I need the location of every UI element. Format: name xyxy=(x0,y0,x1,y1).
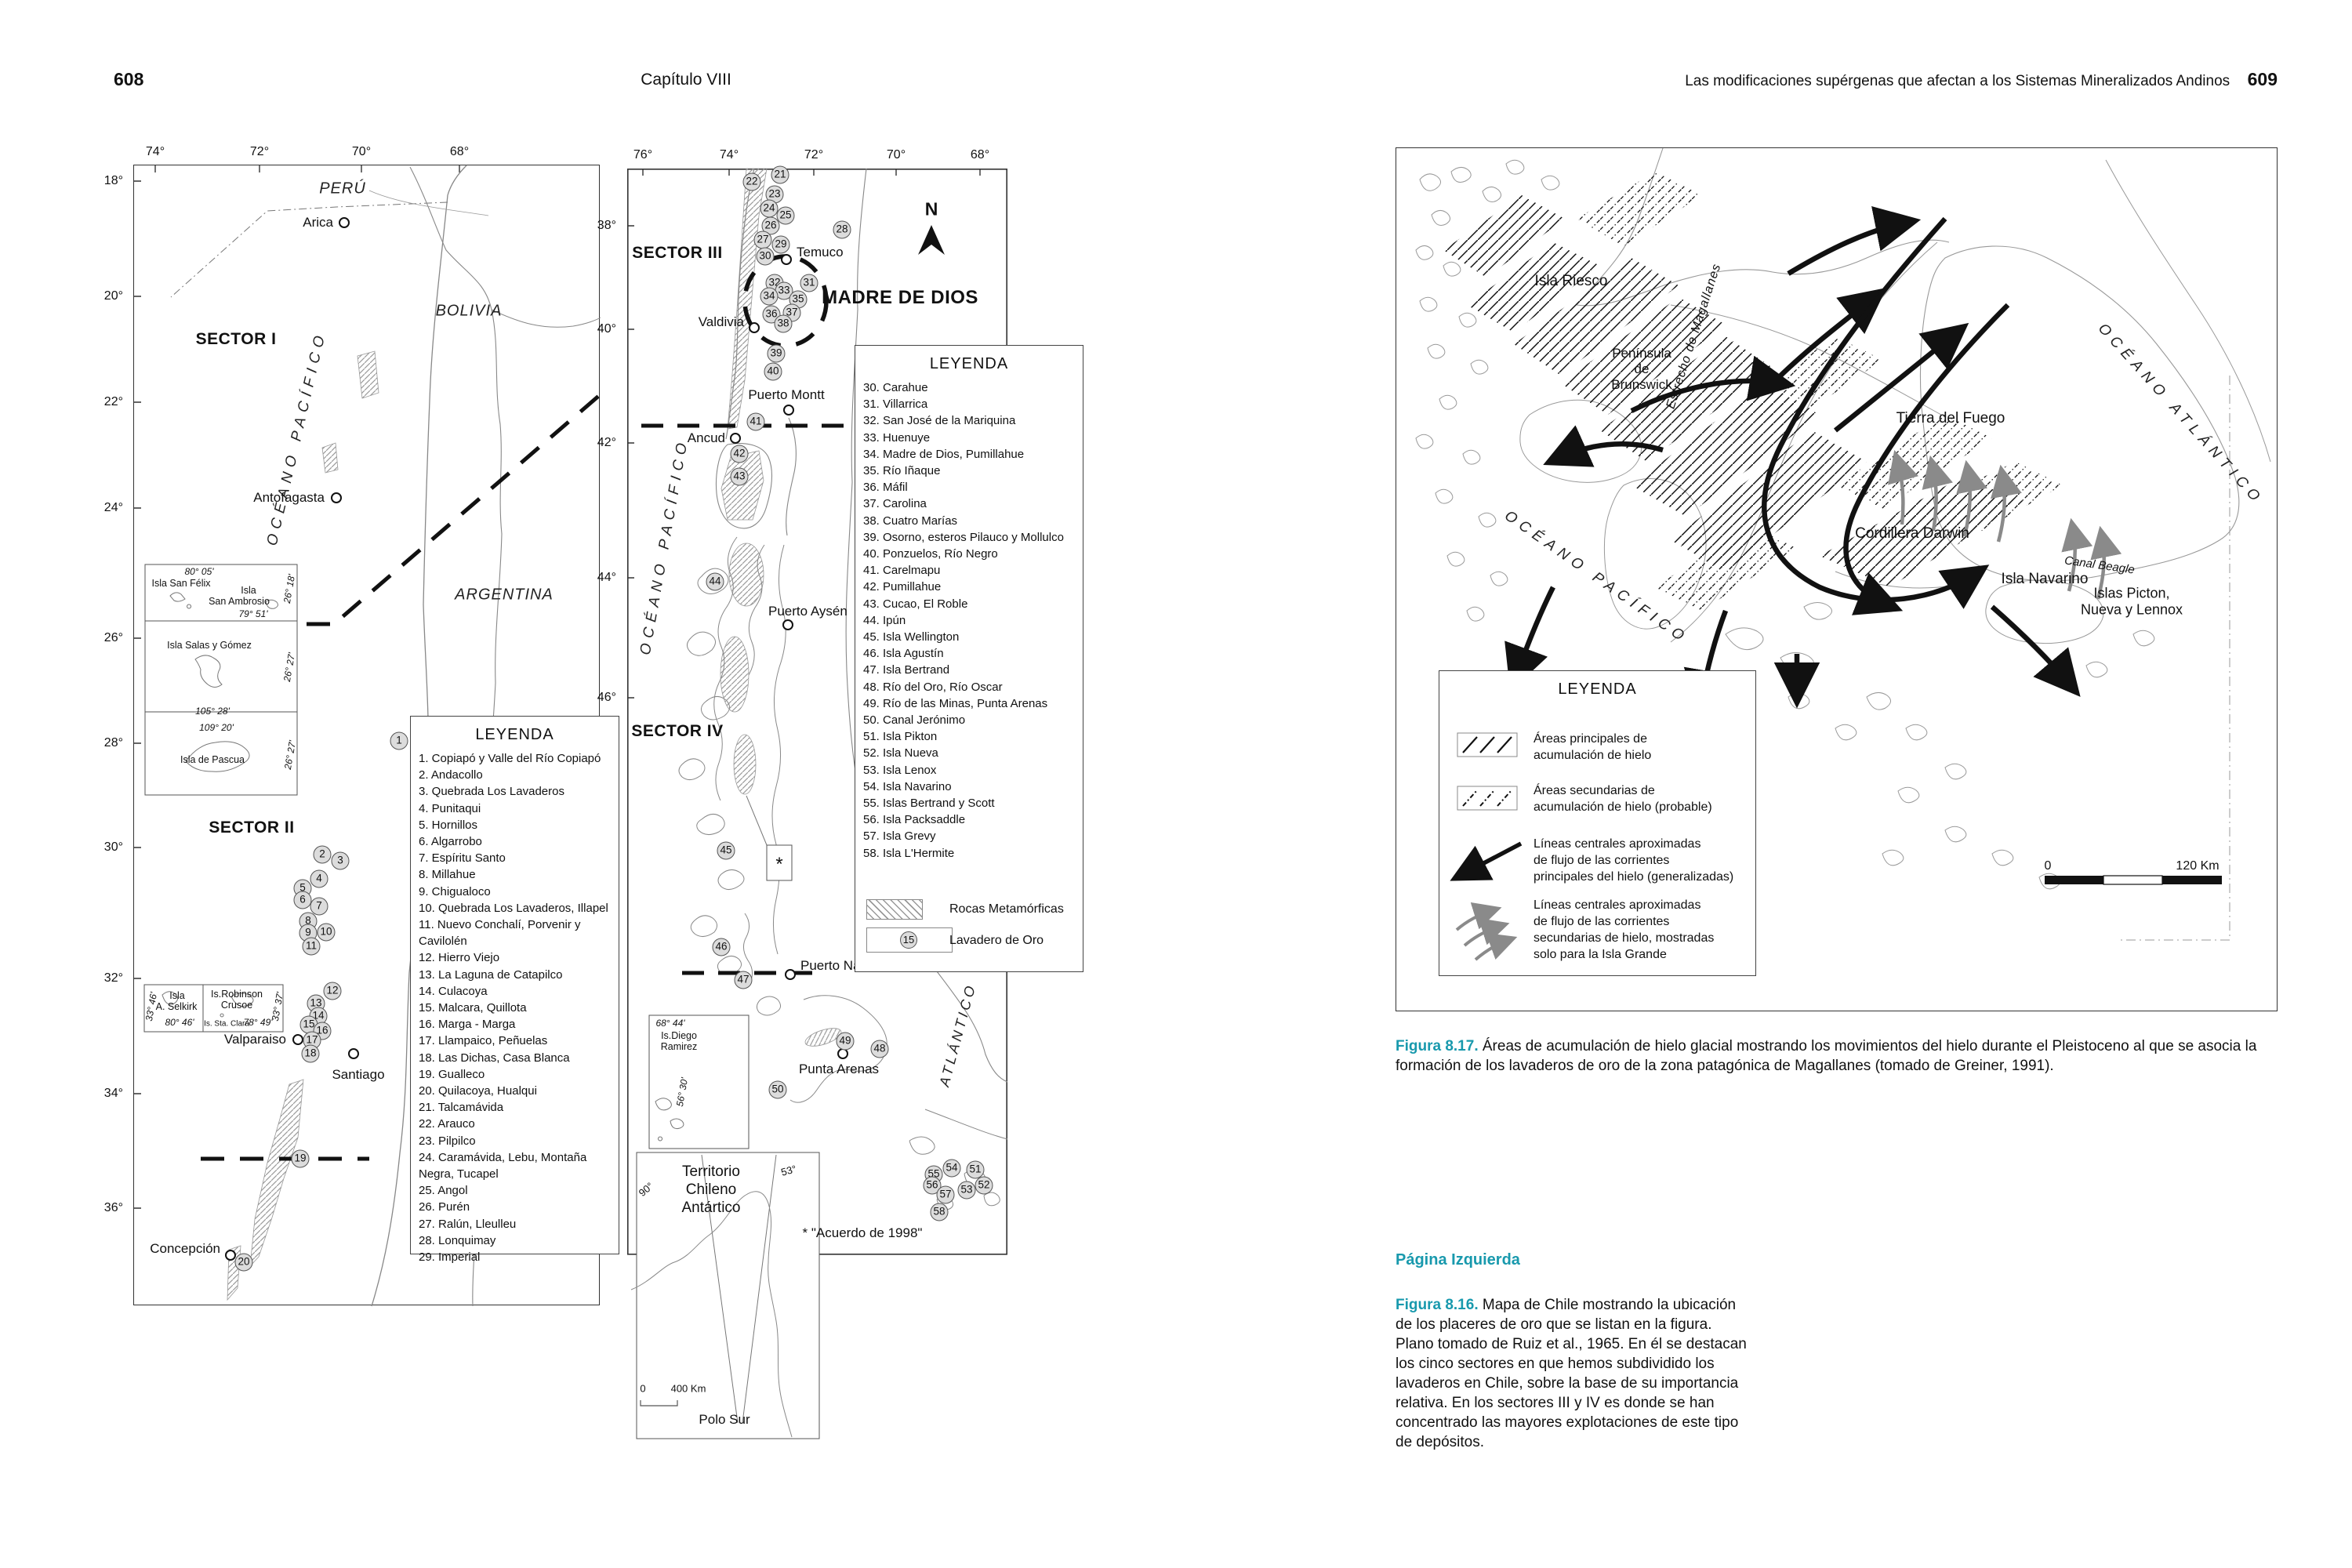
list-item: 33. Huenuye xyxy=(855,430,1083,446)
city-label-Concepción: Concepción xyxy=(150,1241,220,1257)
list-item: 27. Ralún, Lleulleu xyxy=(411,1216,619,1232)
lat-tick-label: 46° xyxy=(597,691,616,705)
lon-tick-label: 68° xyxy=(450,145,469,159)
list-item: 47. Isla Bertrand xyxy=(855,662,1083,678)
map-label: 105° 28' xyxy=(195,706,230,717)
placer-marker-44: 44 xyxy=(706,573,724,591)
lon-tick-label: 72° xyxy=(250,145,269,159)
placer-marker-34: 34 xyxy=(760,288,779,306)
placer-marker-40: 40 xyxy=(764,363,782,381)
placer-marker-38: 38 xyxy=(775,315,793,333)
map-label: Cordillera Darwin xyxy=(1855,525,1969,543)
list-item: 35. Río Iñaque xyxy=(855,463,1083,479)
north-arrow-icon xyxy=(918,225,945,255)
list-item: 38. Cuatro Marías xyxy=(855,513,1083,529)
list-item: Líneas centrales aproximadas xyxy=(1534,836,1733,852)
map-label: 120 Km xyxy=(2176,859,2219,873)
placer-marker-28: 28 xyxy=(833,221,851,239)
legend-fig816-south: LEYENDA 30. Carahue31. Villarrica32. San… xyxy=(855,345,1083,972)
city-dot-Arica xyxy=(339,217,350,228)
gold-placer-sample-marker: 15 xyxy=(900,931,917,949)
list-item: Áreas secundarias de xyxy=(1534,782,1712,799)
running-head-right: Las modificaciones supérgenas que afecta… xyxy=(1685,73,2230,89)
page-number-left: 608 xyxy=(114,69,143,90)
page-number-right: 609 xyxy=(2248,69,2278,89)
list-item: 6. Algarrobo xyxy=(411,833,619,850)
list-item: 42. Pumillahue xyxy=(855,579,1083,595)
list-item: 44. Ipún xyxy=(855,612,1083,629)
map-label: Is. Sta. Clara xyxy=(204,1020,249,1029)
list-item: 11. Nuevo Conchalí, Porvenir y Cavilolén xyxy=(411,916,619,949)
lat-tick-label: 24° xyxy=(104,501,123,515)
map-label: 400 Km xyxy=(671,1383,706,1395)
lat-tick-label: 32° xyxy=(104,971,123,985)
list-item: 1. Copiapó y Valle del Río Copiapó xyxy=(411,750,619,767)
list-item: 10. Quebrada Los Lavaderos, Illapel xyxy=(411,900,619,916)
main-flow-label: Líneas centrales aproximadasde flujo de … xyxy=(1534,836,1733,885)
city-label-Puerto Aysén: Puerto Aysén xyxy=(768,604,848,619)
map-label: Nueva y Lennox xyxy=(2081,602,2183,619)
city-label-Temuco: Temuco xyxy=(797,245,844,260)
gold-placer-swatch: 15 xyxy=(866,927,953,953)
lat-tick-label: 20° xyxy=(104,289,123,303)
list-item: 39. Osorno, esteros Pilauco y Mollulco xyxy=(855,529,1083,546)
placer-marker-25: 25 xyxy=(777,207,795,225)
metamorphic-rock-label: Rocas Metamórficas xyxy=(949,902,1064,916)
lon-tick-label: 76° xyxy=(633,148,652,162)
metamorphic-rock-swatch xyxy=(866,899,923,920)
lon-tick-label: 74° xyxy=(146,145,165,159)
placer-marker-42: 42 xyxy=(731,445,749,463)
placer-marker-58: 58 xyxy=(931,1203,949,1221)
map-label: Isla San Félix xyxy=(151,578,210,589)
placer-marker-11: 11 xyxy=(303,938,321,956)
map-label: Islas Picton, xyxy=(2093,586,2169,602)
map-label: * "Acuerdo de 1998" xyxy=(803,1225,923,1241)
map-label: * xyxy=(775,854,782,876)
lon-tick-label: 70° xyxy=(352,145,371,159)
placer-marker-50: 50 xyxy=(769,1081,787,1099)
list-item: Líneas centrales aproximadas xyxy=(1534,897,1714,913)
secondary-ice-swatch xyxy=(1457,786,1518,811)
lat-tick-label: 18° xyxy=(104,174,123,188)
city-label-Valparaiso: Valparaiso xyxy=(224,1032,286,1047)
list-item: 5. Hornillos xyxy=(411,817,619,833)
list-item: 28. Lonquimay xyxy=(411,1232,619,1249)
city-dot-Concepción xyxy=(225,1250,236,1261)
map-label: 0 xyxy=(2045,859,2052,873)
list-item: 9. Chigualoco xyxy=(411,884,619,900)
map-label: Antártico xyxy=(682,1200,741,1217)
map-label: Ramirez xyxy=(661,1041,698,1052)
legend-items: 1. Copiapó y Valle del Río Copiapó2. And… xyxy=(411,750,619,1265)
lat-tick-label: 30° xyxy=(104,840,123,855)
lat-tick-label: 26° xyxy=(104,631,123,645)
list-item: 43. Cucao, El Roble xyxy=(855,596,1083,612)
legend-items: 30. Carahue31. Villarrica32. San José de… xyxy=(855,379,1083,862)
primary-ice-swatch xyxy=(1457,732,1518,757)
list-item: acumulación de hielo xyxy=(1534,747,1651,764)
map-label: N xyxy=(925,199,938,220)
lat-tick-label: 40° xyxy=(597,322,616,336)
list-item: 32. San José de la Mariquina xyxy=(855,412,1083,429)
map-label: Chileno xyxy=(686,1181,736,1199)
city-label-Punta Arenas: Punta Arenas xyxy=(799,1062,879,1077)
lon-tick-label: 70° xyxy=(887,148,906,162)
list-item: 31. Villarrica xyxy=(855,396,1083,412)
list-item: 7. Espíritu Santo xyxy=(411,850,619,866)
main-flow-arrow-icon xyxy=(1449,837,1527,884)
placer-marker-29: 29 xyxy=(772,236,790,254)
placer-marker-45: 45 xyxy=(717,842,735,860)
map-label: Isla Riesco xyxy=(1535,273,1608,290)
lat-tick-label: 38° xyxy=(597,219,616,233)
lon-tick-label: 68° xyxy=(971,148,989,162)
map-label: SECTOR III xyxy=(632,244,722,263)
list-item: acumulación de hielo (probable) xyxy=(1534,799,1712,815)
placer-marker-19: 19 xyxy=(292,1150,310,1168)
placer-marker-47: 47 xyxy=(735,971,753,989)
legend-fig816-north: LEYENDA 1. Copiapó y Valle del Río Copia… xyxy=(410,716,619,1254)
lat-tick-label: 36° xyxy=(104,1201,123,1215)
list-item: 3. Quebrada Los Lavaderos xyxy=(411,783,619,800)
map-label: A. Selkirk xyxy=(156,1001,198,1012)
placer-marker-46: 46 xyxy=(713,938,731,956)
list-item: 34. Madre de Dios, Pumillahue xyxy=(855,446,1083,463)
placer-marker-20: 20 xyxy=(235,1254,253,1272)
placer-marker-18: 18 xyxy=(302,1045,320,1063)
list-item: principales del hielo (generalizadas) xyxy=(1534,869,1733,885)
list-item: 36. Máfil xyxy=(855,479,1083,495)
secondary-flow-arrows-icon xyxy=(1450,900,1525,963)
list-item: 8. Millahue xyxy=(411,866,619,883)
city-label-Ancud: Ancud xyxy=(688,430,725,446)
city-dot-Antofagasta xyxy=(331,492,342,503)
map-label: 80° 05' xyxy=(184,566,213,577)
list-item: 41. Carelmapu xyxy=(855,562,1083,579)
map-label: Crusoe xyxy=(221,1000,252,1011)
list-item: 45. Isla Wellington xyxy=(855,629,1083,645)
list-item: 16. Marga - Marga xyxy=(411,1016,619,1033)
list-item: 49. Río de las Minas, Punta Arenas xyxy=(855,695,1083,712)
list-item: 12. Hierro Viejo xyxy=(411,949,619,966)
city-dot-Temuco xyxy=(781,254,792,265)
list-item: 54. Isla Navarino xyxy=(855,779,1083,795)
map-label: MADRE DE DIOS xyxy=(822,287,978,309)
page-left-note: Página Izquierda xyxy=(1396,1250,1520,1270)
city-dot-Santiago xyxy=(348,1048,359,1059)
city-dot-Puerto Natales xyxy=(785,969,796,980)
scale-bar xyxy=(2045,876,2222,884)
list-item: 23. Pilpilco xyxy=(411,1133,619,1149)
lat-tick-label: 28° xyxy=(104,736,123,750)
list-item: 25. Angol xyxy=(411,1182,619,1199)
island-insets xyxy=(144,564,297,1032)
placer-marker-57: 57 xyxy=(937,1186,955,1204)
list-item: 17. Llampaico, Peñuelas xyxy=(411,1033,619,1049)
placer-marker-52: 52 xyxy=(975,1177,993,1195)
city-dot-Ancud xyxy=(730,433,741,444)
placer-marker-21: 21 xyxy=(771,166,789,184)
placer-marker-10: 10 xyxy=(318,924,336,942)
map-label: 79° 51' xyxy=(238,608,267,619)
lat-tick-label: 44° xyxy=(597,571,616,585)
map-label: SECTOR I xyxy=(196,330,277,349)
map-label: Is.Robinson xyxy=(211,989,263,1000)
map-label: Polo Sur xyxy=(699,1412,750,1428)
placer-marker-53: 53 xyxy=(958,1181,976,1200)
placer-marker-3: 3 xyxy=(332,852,350,870)
caption-fig816: Figura 8.16. Mapa de Chile mostrando la … xyxy=(1396,1295,1750,1452)
map-label: SECTOR II xyxy=(209,818,294,837)
list-item: secundarias de hielo, mostradas xyxy=(1534,930,1714,946)
placer-marker-54: 54 xyxy=(943,1160,961,1178)
map-label: SECTOR IV xyxy=(631,722,723,741)
map-label: San Ambrosio xyxy=(209,596,270,607)
placer-marker-2: 2 xyxy=(314,846,332,864)
list-item: 30. Carahue xyxy=(855,379,1083,396)
map-label: 109° 20' xyxy=(199,722,234,733)
list-item: 13. La Laguna de Catapilco xyxy=(411,967,619,983)
caption-fig816-text: Mapa de Chile mostrando la ubicación de … xyxy=(1396,1297,1747,1450)
map-label: Isla Navarino xyxy=(2002,571,2089,588)
list-item: 57. Isla Grevy xyxy=(855,828,1083,844)
map-label: BOLIVIA xyxy=(436,303,503,321)
primary-ice-label: Áreas principales deacumulación de hielo xyxy=(1534,731,1651,764)
placer-marker-39: 39 xyxy=(768,345,786,363)
list-item: 29. Imperial xyxy=(411,1249,619,1265)
placer-marker-7: 7 xyxy=(310,898,328,916)
running-head-left: Capítulo VIII xyxy=(641,71,731,89)
legend-fig817: LEYENDA Áreas principales deacumulación … xyxy=(1439,670,1756,976)
map-label: Península xyxy=(1612,346,1671,361)
map-label: PERÚ xyxy=(319,180,366,198)
placer-marker-1: 1 xyxy=(390,732,408,750)
map-label: Territorio xyxy=(682,1163,740,1181)
city-label-Arica: Arica xyxy=(303,215,333,230)
city-dot-Puerto Montt xyxy=(783,405,794,416)
list-item: 2. Andacollo xyxy=(411,767,619,783)
placer-marker-27: 27 xyxy=(754,231,772,249)
list-item: 26. Purén xyxy=(411,1199,619,1215)
list-item: 50. Canal Jerónimo xyxy=(855,712,1083,728)
city-label-Santiago: Santiago xyxy=(332,1067,384,1083)
list-item: Áreas principales de xyxy=(1534,731,1651,747)
list-item: 52. Isla Nueva xyxy=(855,745,1083,761)
map-label: Isla Salas y Gómez xyxy=(167,640,252,651)
legend-title: LEYENDA xyxy=(411,717,619,744)
list-item: 58. Isla L'Hermite xyxy=(855,845,1083,862)
list-item: 20. Quilacoya, Hualqui xyxy=(411,1083,619,1099)
map-label: 78° 49' xyxy=(243,1017,272,1028)
legend-title: LEYENDA xyxy=(1439,671,1755,699)
city-label-Valdivia: Valdivia xyxy=(699,314,744,330)
list-item: 14. Culacoya xyxy=(411,983,619,1000)
map-label: 68° 44' xyxy=(655,1018,684,1029)
map-label: Is.Diego xyxy=(661,1030,697,1041)
map-label: Tierra del Fuego xyxy=(1896,410,2005,427)
lon-tick-label: 72° xyxy=(804,148,823,162)
list-item: 21. Talcamávida xyxy=(411,1099,619,1116)
placer-marker-31: 31 xyxy=(800,274,818,292)
map-label: 80° 46' xyxy=(165,1017,194,1028)
caption-fig817: Figura 8.17. Áreas de acumulación de hie… xyxy=(1396,1036,2297,1076)
placer-marker-22: 22 xyxy=(743,173,761,191)
list-item: 22. Arauco xyxy=(411,1116,619,1132)
list-item: 4. Punitaqui xyxy=(411,800,619,817)
placer-marker-43: 43 xyxy=(731,468,749,486)
list-item: 15. Malcara, Quillota xyxy=(411,1000,619,1016)
placer-marker-6: 6 xyxy=(294,891,312,909)
city-label-Antofagasta: Antofagasta xyxy=(253,490,325,506)
book-spread: { "colors":{"accent_teal":"#1899ad","hat… xyxy=(0,0,2352,1568)
placer-marker-24: 24 xyxy=(760,200,779,218)
running-head-right-wrap: Las modificaciones supérgenas que afecta… xyxy=(1685,69,2278,90)
city-dot-Valdivia xyxy=(749,322,760,333)
gold-placer-label: Lavadero de Oro xyxy=(949,934,1044,948)
secondary-ice-label: Áreas secundarias deacumulación de hielo… xyxy=(1534,782,1712,815)
list-item: 37. Carolina xyxy=(855,495,1083,512)
map-label: de xyxy=(1635,361,1650,377)
lon-tick-label: 74° xyxy=(720,148,739,162)
city-dot-Valparaiso xyxy=(292,1034,303,1045)
map-label: Isla xyxy=(169,990,184,1001)
list-item: 19. Gualleco xyxy=(411,1066,619,1083)
lat-tick-label: 42° xyxy=(597,436,616,450)
map-label: Isla de Pascua xyxy=(180,754,245,765)
list-item: 46. Isla Agustín xyxy=(855,645,1083,662)
map-label: ARGENTINA xyxy=(455,586,554,604)
list-item: 48. Río del Oro, Río Oscar xyxy=(855,679,1083,695)
list-item: 24. Caramávida, Lebu, Montaña Negra, Tuc… xyxy=(411,1149,619,1182)
list-item: 51. Isla Pikton xyxy=(855,728,1083,745)
city-dot-Puerto Aysén xyxy=(782,619,793,630)
list-item: 56. Isla Packsaddle xyxy=(855,811,1083,828)
placer-marker-30: 30 xyxy=(757,248,775,266)
map-label: 0 xyxy=(640,1383,645,1395)
list-item: solo para la Isla Grande xyxy=(1534,946,1714,963)
list-item: 18. Las Dichas, Casa Blanca xyxy=(411,1050,619,1066)
secondary-flow-label: Líneas centrales aproximadasde flujo de … xyxy=(1534,897,1714,963)
placer-marker-4: 4 xyxy=(310,870,328,888)
legend-title: LEYENDA xyxy=(855,346,1083,373)
map-label: Brunswick xyxy=(1611,377,1671,393)
list-item: 53. Isla Lenox xyxy=(855,762,1083,779)
caption-fig817-label: Figura 8.17. xyxy=(1396,1038,1479,1054)
placer-marker-48: 48 xyxy=(871,1040,889,1058)
list-item: 40. Ponzuelos, Río Negro xyxy=(855,546,1083,562)
list-item: 55. Islas Bertrand y Scott xyxy=(855,795,1083,811)
caption-fig817-text: Áreas de acumulación de hielo glacial mo… xyxy=(1396,1038,2256,1074)
caption-fig816-label: Figura 8.16. xyxy=(1396,1297,1479,1313)
list-item: de flujo de las corrientes xyxy=(1534,913,1714,930)
list-item: de flujo de las corrientes xyxy=(1534,852,1733,869)
placer-marker-41: 41 xyxy=(747,413,765,431)
placer-marker-49: 49 xyxy=(837,1033,855,1051)
placer-marker-12: 12 xyxy=(324,982,342,1000)
lat-tick-label: 34° xyxy=(104,1087,123,1101)
city-label-Puerto Montt: Puerto Montt xyxy=(748,387,824,403)
map-label: Isla xyxy=(241,585,256,596)
lat-tick-label: 22° xyxy=(104,395,123,409)
